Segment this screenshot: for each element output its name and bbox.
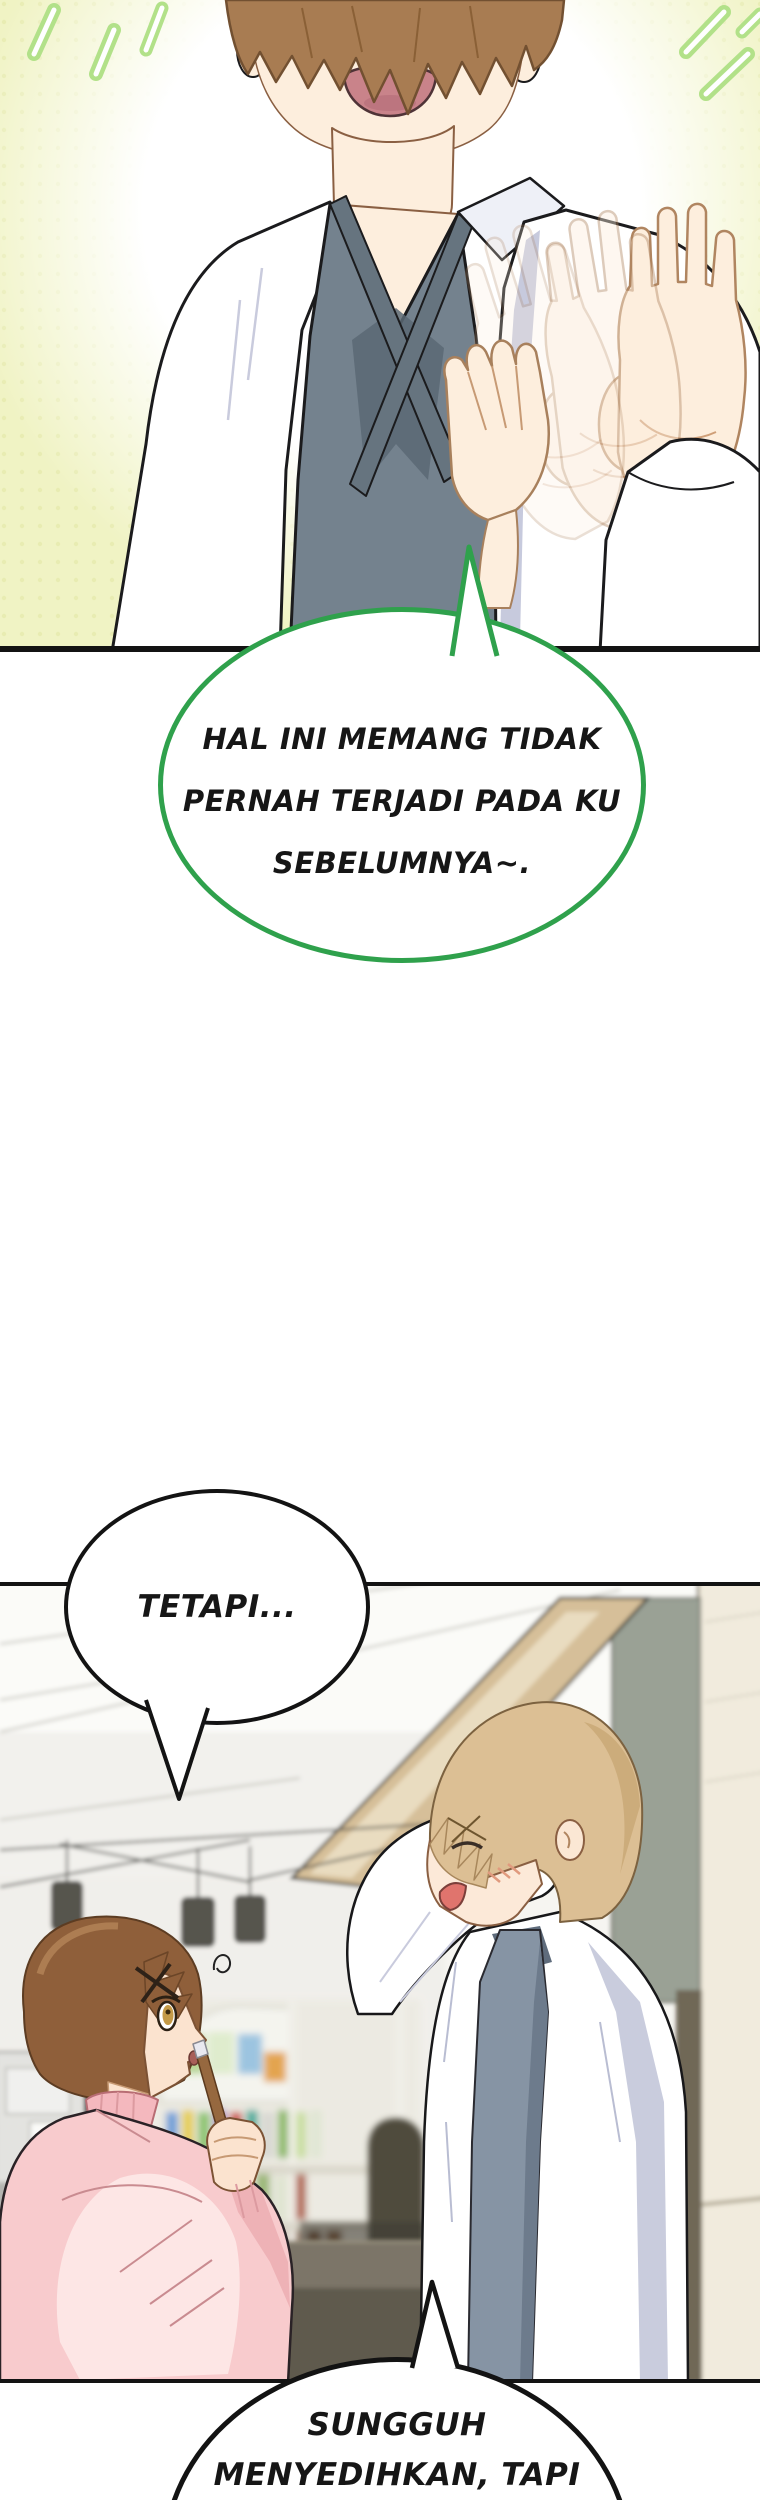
bubble-line: SEBELUMNYA~.: [273, 832, 531, 894]
bubble-line: HAL INI MEMANG TIDAK: [203, 708, 602, 770]
panel-doctor-waving: [0, 0, 760, 652]
lamp-shade: [182, 1898, 214, 1946]
bubble-line: SUNGGUH: [308, 2400, 487, 2450]
lamp-shade: [235, 1896, 265, 1942]
bubble-line: MENYEDIHKAN, TAPI: [214, 2450, 581, 2500]
speech-bubble-doctor-intro: HAL INI MEMANG TIDAK PERNAH TERJADI PADA…: [158, 607, 646, 963]
amber-iris: [163, 2005, 174, 2025]
panel-store-scene: [0, 1582, 760, 2383]
comic-page: HAL INI MEMANG TIDAK PERNAH TERJADI PADA…: [0, 0, 760, 2500]
speech-bubble-tetapi: TETAPI...: [64, 1489, 370, 1725]
bubble-line: PERNAH TERJADI PADA KU: [183, 770, 621, 832]
bubble-line: TETAPI...: [137, 1589, 296, 1625]
